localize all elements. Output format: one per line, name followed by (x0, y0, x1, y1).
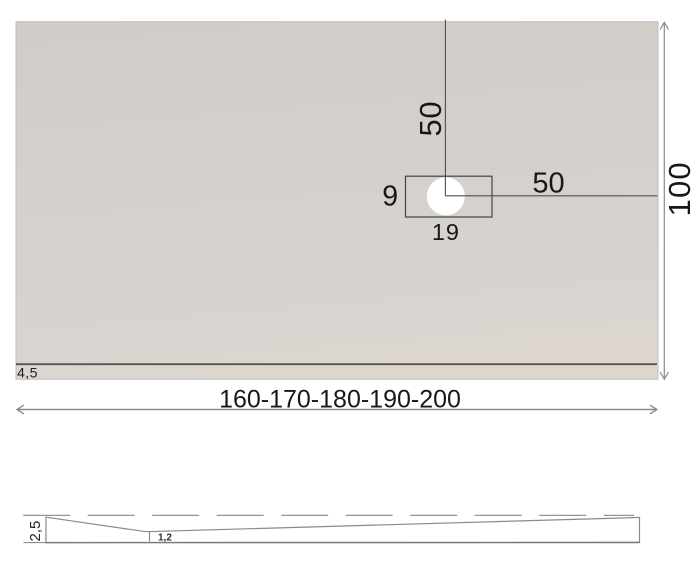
svg-text:50: 50 (532, 168, 564, 200)
svg-text:2,5: 2,5 (27, 521, 44, 542)
svg-text:1,2: 1,2 (158, 532, 172, 543)
svg-text:50: 50 (413, 101, 448, 137)
svg-text:4,5: 4,5 (17, 366, 38, 382)
svg-text:160-170-180-190-200: 160-170-180-190-200 (219, 385, 461, 413)
svg-text:100: 100 (662, 161, 697, 216)
svg-text:9: 9 (382, 181, 398, 213)
svg-text:19: 19 (432, 219, 460, 245)
